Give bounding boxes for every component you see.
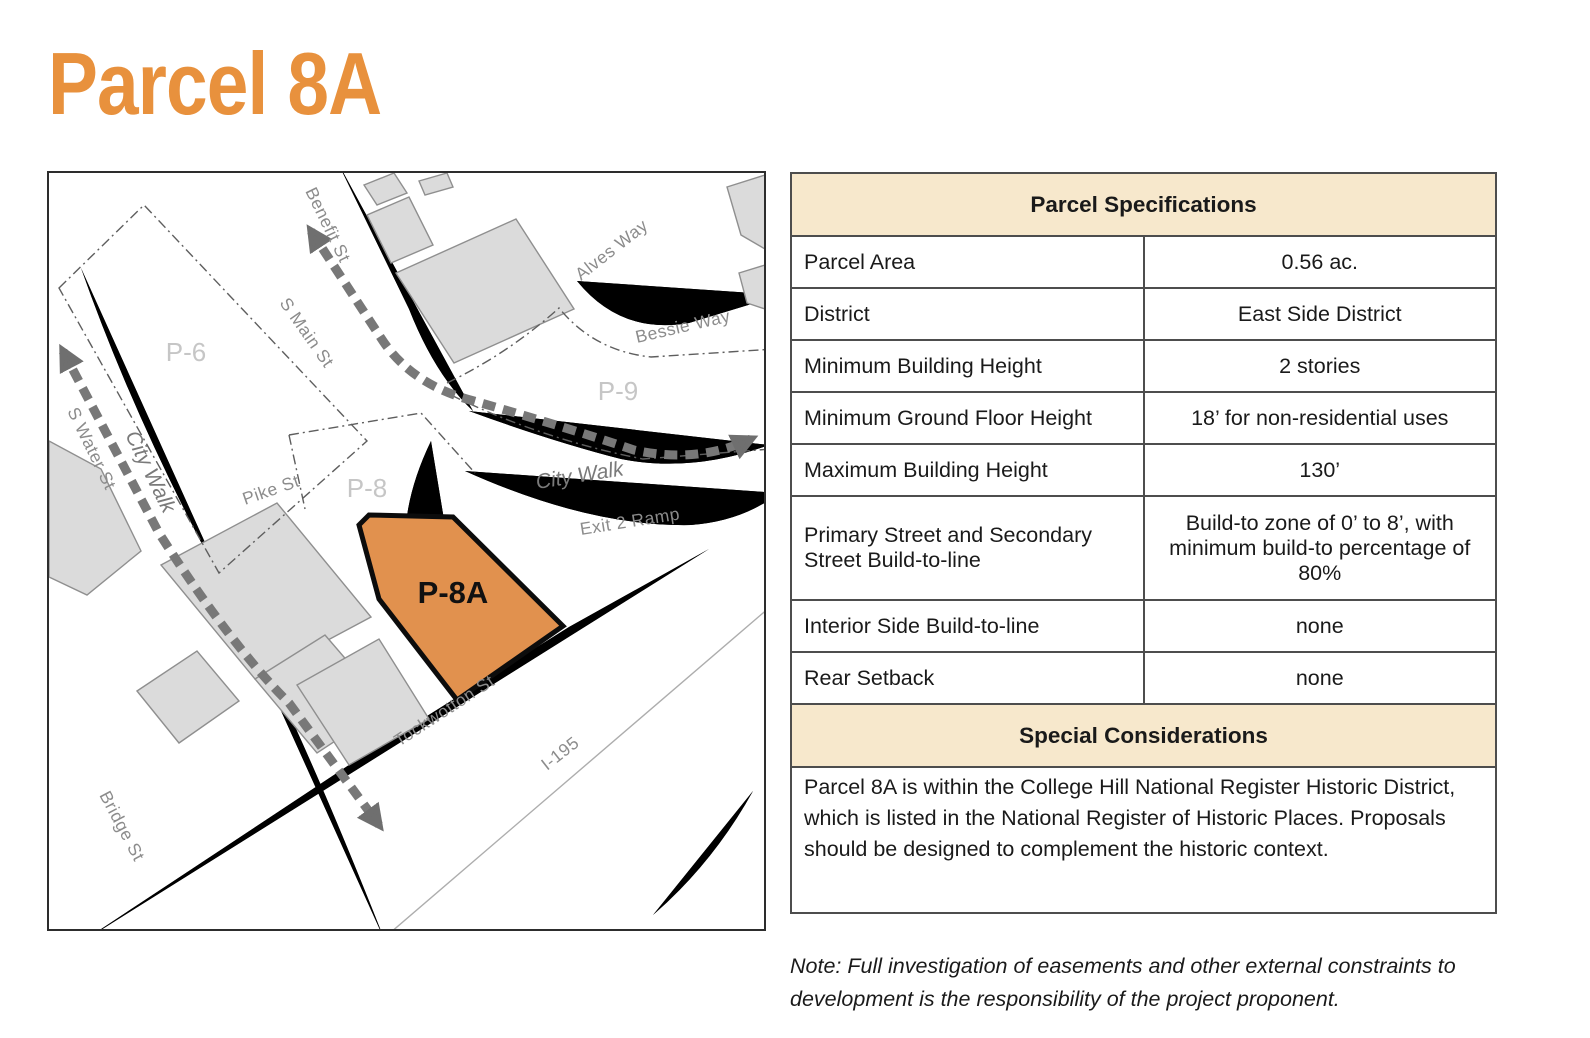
table-header-row: Parcel Specifications: [791, 173, 1496, 236]
row-label: Minimum Building Height: [791, 340, 1144, 392]
table-title: Parcel Specifications: [791, 173, 1496, 236]
table-row: Interior Side Build-to-line none: [791, 600, 1496, 652]
street-label-s-main-st: S Main St: [276, 294, 338, 371]
row-label: District: [791, 288, 1144, 340]
parcel-spec-table: Parcel Specifications Parcel Area 0.56 a…: [790, 172, 1497, 914]
street-label-alves-way: Alves Way: [571, 215, 651, 284]
row-label: Interior Side Build-to-line: [791, 600, 1144, 652]
row-value: 18’ for non-residential uses: [1144, 392, 1497, 444]
table-row: Rear Setback none: [791, 652, 1496, 704]
row-label: Rear Setback: [791, 652, 1144, 704]
parcel-label-p8a: P-8A: [418, 575, 489, 610]
row-value: none: [1144, 600, 1497, 652]
special-considerations-text: Parcel 8A is within the College Hill Nat…: [791, 767, 1496, 913]
spec-panel: Parcel Specifications Parcel Area 0.56 a…: [790, 172, 1497, 914]
parcel-label-p9: P-9: [598, 376, 638, 406]
table-row: Maximum Building Height 130’: [791, 444, 1496, 496]
row-value: none: [1144, 652, 1497, 704]
row-value: 0.56 ac.: [1144, 236, 1497, 288]
table-row: Parcel Area 0.56 ac.: [791, 236, 1496, 288]
row-value: Build-to zone of 0’ to 8’, with minimum …: [1144, 496, 1497, 600]
table-row: Minimum Building Height 2 stories: [791, 340, 1496, 392]
street-label-i-195: I-195: [537, 732, 583, 774]
page-title: Parcel 8A: [48, 40, 381, 128]
street-label-pike-st: Pike St: [240, 471, 302, 509]
row-value: East Side District: [1144, 288, 1497, 340]
parcel-label-p6: P-6: [166, 337, 206, 367]
parcel-label-p8: P-8: [347, 473, 387, 503]
row-value: 2 stories: [1144, 340, 1497, 392]
row-label: Parcel Area: [791, 236, 1144, 288]
map-svg: Benefit St S Main St S Water St City Wal…: [49, 173, 764, 929]
special-considerations-row: Parcel 8A is within the College Hill Nat…: [791, 767, 1496, 913]
street-label-bridge-st: Bridge St: [95, 787, 149, 864]
table-row: Primary Street and Secondary Street Buil…: [791, 496, 1496, 600]
row-label: Minimum Ground Floor Height: [791, 392, 1144, 444]
special-considerations-header-row: Special Considerations: [791, 704, 1496, 767]
special-considerations-title: Special Considerations: [791, 704, 1496, 767]
parcel-location-map: Benefit St S Main St S Water St City Wal…: [47, 171, 766, 931]
row-value: 130’: [1144, 444, 1497, 496]
table-row: Minimum Ground Floor Height 18’ for non-…: [791, 392, 1496, 444]
table-row: District East Side District: [791, 288, 1496, 340]
footnote: Note: Full investigation of easements an…: [790, 950, 1502, 1017]
row-label: Primary Street and Secondary Street Buil…: [791, 496, 1144, 600]
row-label: Maximum Building Height: [791, 444, 1144, 496]
